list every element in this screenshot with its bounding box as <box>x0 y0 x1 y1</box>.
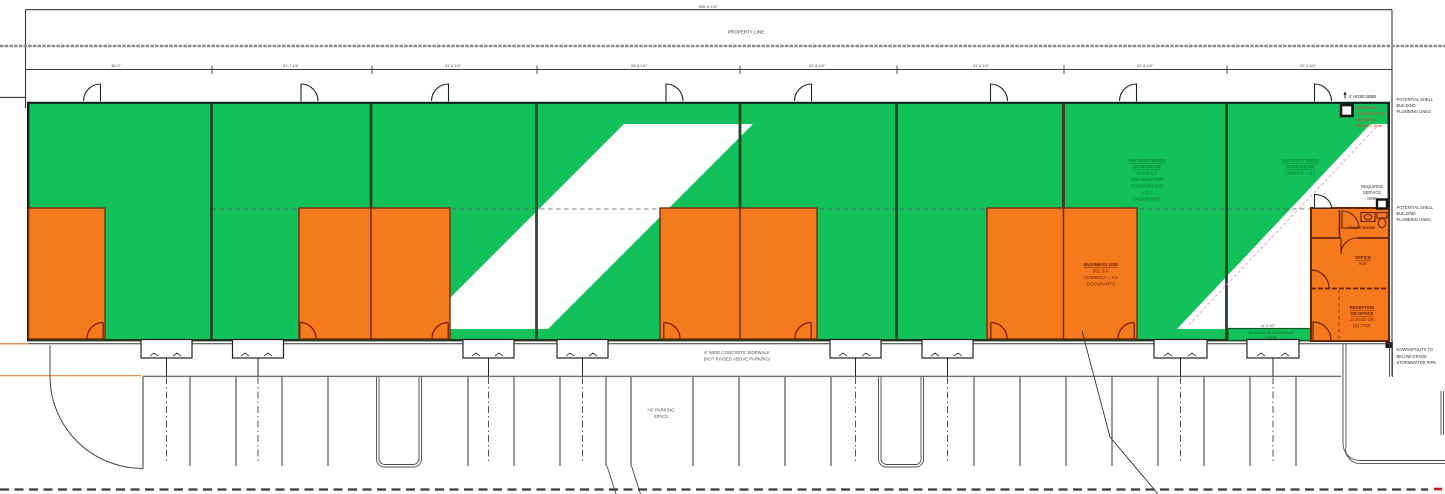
svg-text:HC PARKING: HC PARKING <box>648 408 676 413</box>
svg-text:OCCUPANTS: OCCUPANTS <box>1133 197 1160 202</box>
svg-text:BUILDING: BUILDING <box>1397 103 1416 108</box>
svg-text:PROPERTY LINE: PROPERTY LINE <box>728 30 765 35</box>
svg-text:(or) 7'x10': (or) 7'x10' <box>1353 323 1372 328</box>
svg-text:PLUMBING LINES: PLUMBING LINES <box>1397 109 1432 114</box>
svg-text:TOILET ROOM: TOILET ROOM <box>1347 225 1375 230</box>
svg-text:UNCONDITIONED: UNCONDITIONED <box>1281 158 1318 163</box>
svg-text:REQUIRED: REQUIRED <box>1361 184 1383 189</box>
svg-text:13,449 S.F.: 13,449 S.F. <box>1136 171 1158 176</box>
svg-text:(1/300OLF = 2.5: (1/300OLF = 2.5 <box>1084 275 1118 280</box>
svg-text:REQUIRED: REQUIRED <box>1355 117 1376 122</box>
svg-text:STORMWATER PIPE: STORMWATER PIPE <box>1397 360 1437 365</box>
svg-text:WAREHOUSE: WAREHOUSE <box>1286 164 1315 169</box>
svg-text:SERVICE: SERVICE <box>1363 190 1382 195</box>
svg-text:306'-6 1/4": 306'-6 1/4" <box>698 4 718 9</box>
svg-text:OR OFFICE: OR OFFICE <box>1351 311 1374 316</box>
svg-text:31'-6 1/4": 31'-6 1/4" <box>1137 64 1154 68</box>
svg-text:562 S.F.: 562 S.F. <box>1093 269 1110 274</box>
svg-text:6' WIDE CONCRETE SIDEWALK: 6' WIDE CONCRETE SIDEWALK <box>704 350 770 355</box>
svg-text:BELOW GRADE: BELOW GRADE <box>1397 354 1428 359</box>
svg-text:(NOT RAISED ABOVE PARKING): (NOT RAISED ABOVE PARKING) <box>704 357 771 362</box>
svg-text:4' HOSE BIBB: 4' HOSE BIBB <box>1349 94 1377 99</box>
svg-text:OFFICE: OFFICE <box>1355 255 1371 260</box>
svg-text:ALTERNATE: ALTERNATE <box>1355 105 1378 110</box>
svg-text:BUSINESS USE: BUSINESS USE <box>1084 262 1118 267</box>
svg-text:36'-0": 36'-0" <box>111 64 121 68</box>
svg-text:7,049 S.F. = 3.5: 7,049 S.F. = 3.5 <box>1285 171 1316 176</box>
svg-text:BUILDING: BUILDING <box>1397 211 1416 216</box>
svg-text:POTENTIAL SHELL: POTENTIAL SHELL <box>1397 97 1434 102</box>
svg-text:WAREHOUSE: WAREHOUSE <box>1133 164 1162 169</box>
svg-text:POTENTIAL SHELL: POTENTIAL SHELL <box>1397 205 1434 210</box>
svg-text:STORAGE) OSF: STORAGE) OSF <box>1130 184 1163 189</box>
svg-text:SERVICE SINK: SERVICE SINK <box>1355 123 1383 128</box>
svg-text:RECEPTION: RECEPTION <box>1350 305 1374 310</box>
svg-text:9'x9': 9'x9' <box>1359 261 1368 266</box>
svg-text:31'-6 1/4": 31'-6 1/4" <box>445 64 462 68</box>
svg-text:OCCUPANTS: OCCUPANTS <box>1087 282 1116 287</box>
svg-text:DOWNSPOUTS TO: DOWNSPOUTS TO <box>1397 347 1433 352</box>
svg-text:28'-4 1/4": 28'-4 1/4" <box>631 64 648 68</box>
svg-text:LOCATION FOR: LOCATION FOR <box>1355 111 1385 116</box>
svg-text:32'-2 3/4": 32'-2 3/4" <box>1300 64 1317 68</box>
svg-text:31'-6 1/4": 31'-6 1/4" <box>809 64 826 68</box>
svg-text:(500 USED FOR: (500 USED FOR <box>1131 177 1164 182</box>
svg-text:31'-6 1/4": 31'-6 1/4" <box>973 64 990 68</box>
svg-text:PLUMBING LINES: PLUMBING LINES <box>1397 217 1432 222</box>
svg-text:31'-7 1/4": 31'-7 1/4" <box>283 64 300 68</box>
svg-text:SINK: SINK <box>1367 196 1377 201</box>
svg-text:SPACE: SPACE <box>654 414 669 419</box>
svg-text:= 5.1: = 5.1 <box>1142 190 1152 195</box>
svg-text:14.5'x10' OR: 14.5'x10' OR <box>1350 317 1374 322</box>
svg-text:14'-0 1/2": 14'-0 1/2" <box>1260 324 1276 328</box>
svg-text:UNCONDITIONED: UNCONDITIONED <box>1128 158 1165 163</box>
